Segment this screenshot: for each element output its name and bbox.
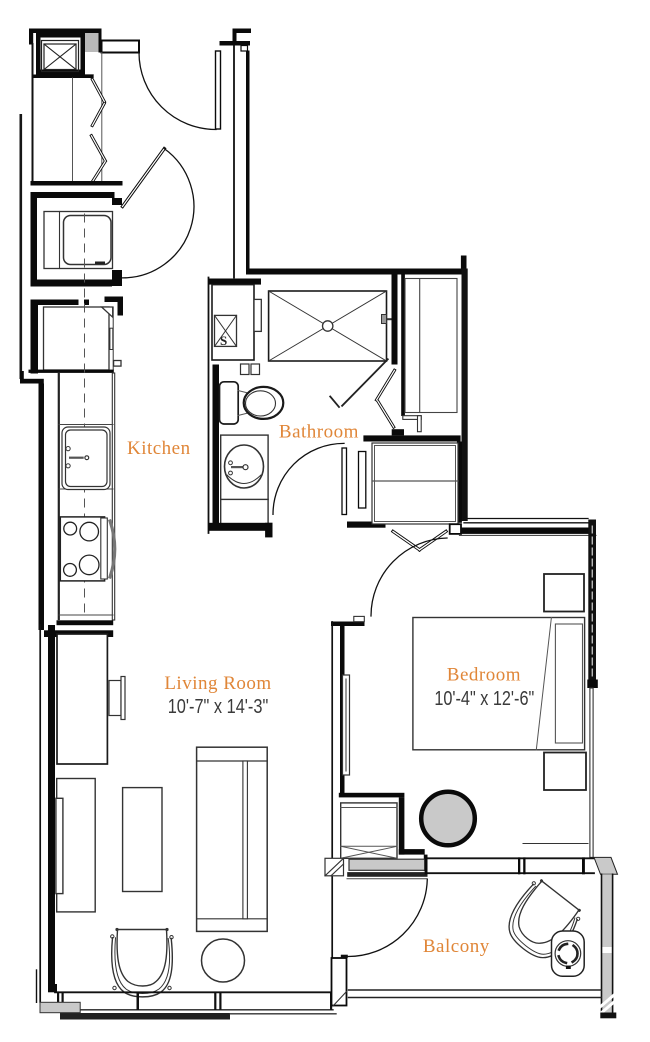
svg-text:Bedroom: Bedroom	[447, 665, 521, 686]
svg-text:Balcony: Balcony	[423, 936, 490, 957]
svg-text:Bathroom: Bathroom	[279, 422, 359, 443]
svg-text:10'-7" x 14'-3": 10'-7" x 14'-3"	[168, 696, 269, 718]
svg-text:Kitchen: Kitchen	[127, 438, 191, 459]
svg-text:10'-4" x 12'-6": 10'-4" x 12'-6"	[434, 688, 534, 710]
svg-text:S: S	[220, 333, 227, 348]
svg-text:Living Room: Living Room	[164, 673, 271, 694]
